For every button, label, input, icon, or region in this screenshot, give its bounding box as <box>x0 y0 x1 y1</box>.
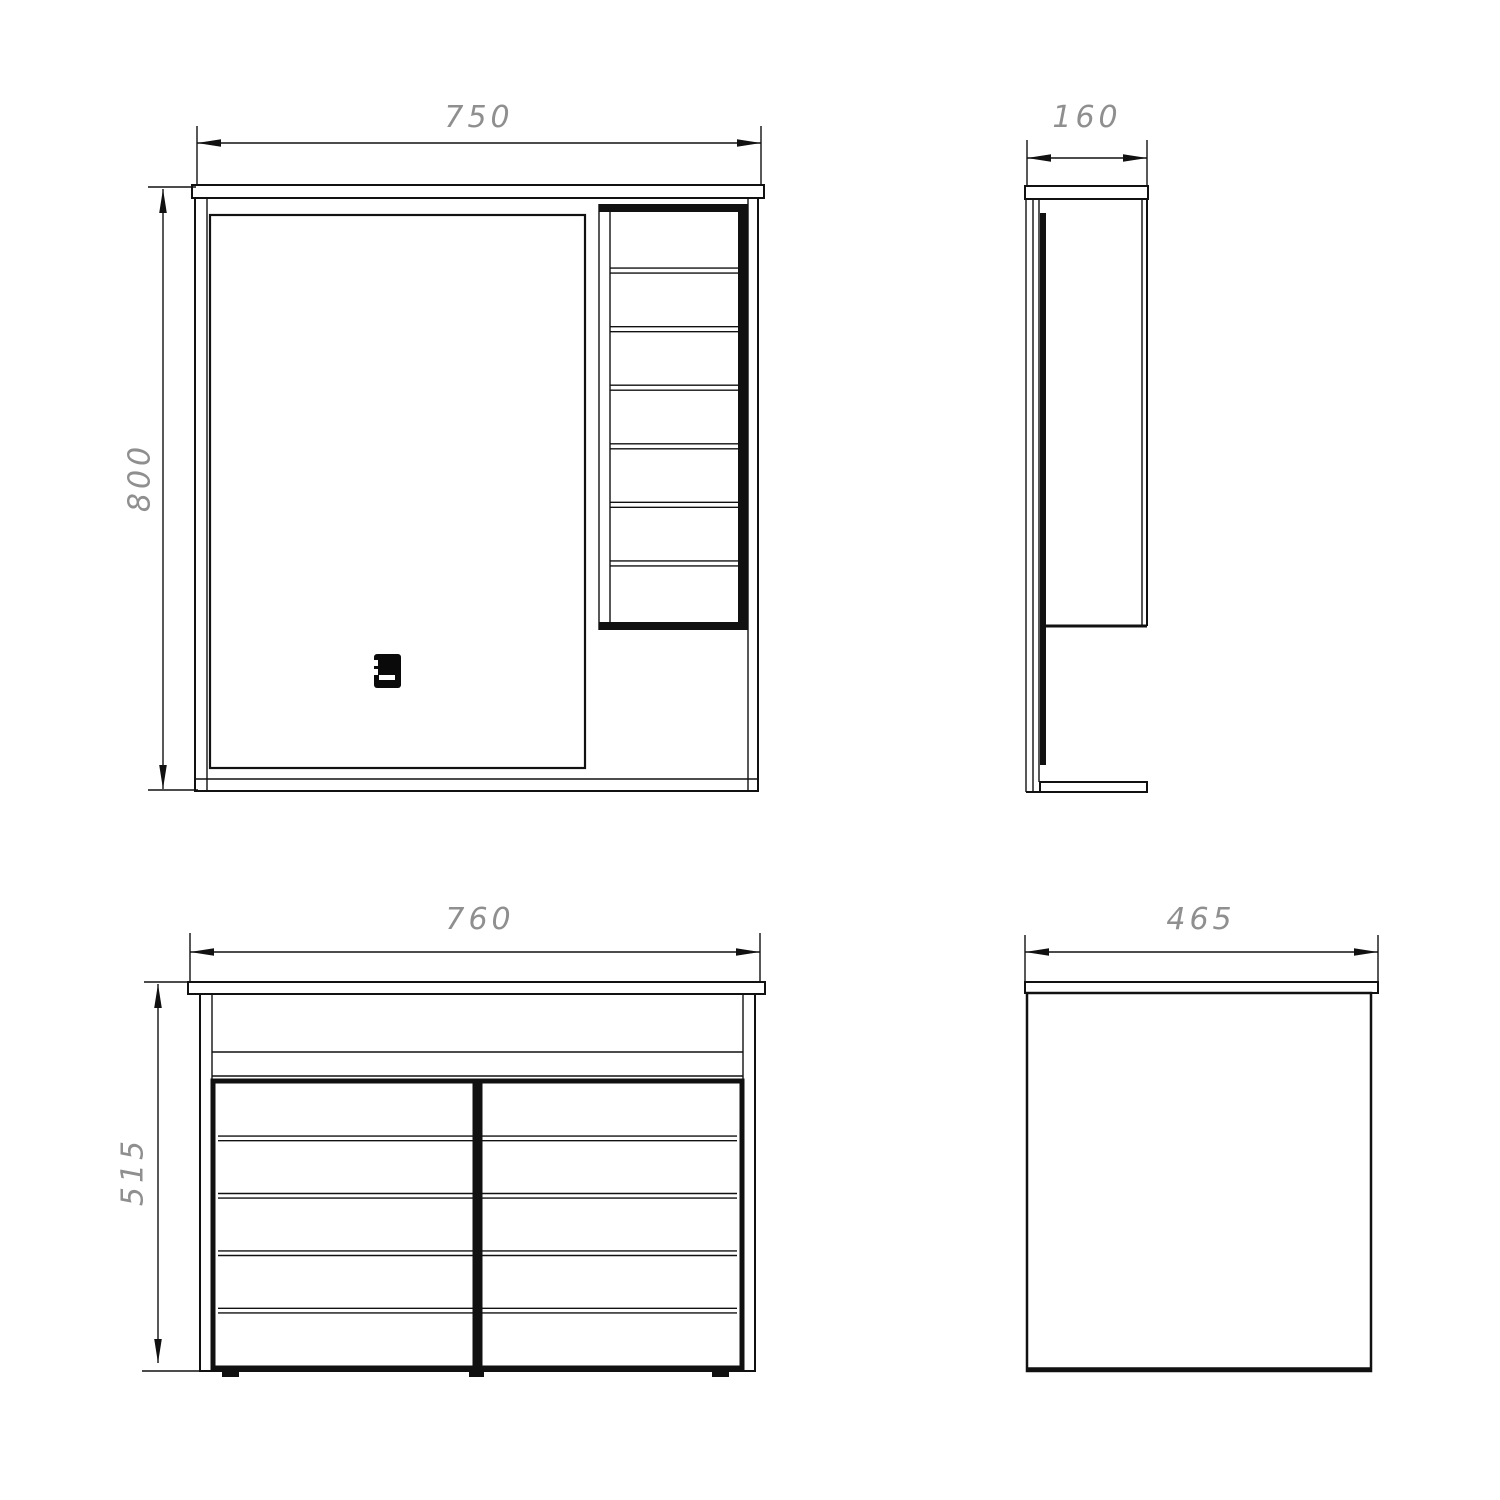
arrow-left <box>197 139 221 147</box>
dim-depth-465-lines <box>1025 935 1378 982</box>
dim-width-760-lines <box>190 933 760 982</box>
arrow-left <box>190 948 214 956</box>
arrow-right <box>736 948 760 956</box>
arrow-right <box>737 139 761 147</box>
top-board-side <box>1025 186 1148 199</box>
countertop-side <box>1025 982 1378 993</box>
dim-label-vanity-depth: 465 <box>1151 902 1251 937</box>
bottom-ledge <box>1040 782 1147 792</box>
drawer-column-dividers <box>473 1081 483 1368</box>
cabinet-body <box>195 198 758 791</box>
arrow-right <box>1354 948 1378 956</box>
dim-label-vanity-width: 760 <box>430 902 530 937</box>
vanity-body-side <box>1027 993 1371 1371</box>
arrow-up <box>159 189 167 213</box>
foot-center <box>469 1370 484 1377</box>
vanity-side-view <box>1025 935 1378 1371</box>
shelf-separators <box>610 268 738 566</box>
touch-switch-icon <box>372 654 401 688</box>
drawer-grid <box>213 1081 742 1368</box>
technical-drawing-canvas: 750 800 160 760 515 465 <box>0 0 1500 1500</box>
mirror-cabinet-side-view <box>1025 140 1148 792</box>
dim-depth-160-lines <box>1027 140 1147 186</box>
arrow-down <box>159 765 167 789</box>
dim-label-vanity-height: 515 <box>116 1122 151 1222</box>
shelf-column <box>599 204 748 630</box>
drawer-center-divider <box>473 1081 483 1368</box>
arrow-left <box>1027 154 1051 162</box>
dim-height-515-lines <box>142 982 208 1371</box>
shelf-right-rail-bar <box>738 204 748 630</box>
mirror-cabinet-front-view <box>148 126 764 791</box>
dim-label-mirror-depth: 160 <box>1037 100 1137 135</box>
arrow-up <box>154 984 162 1008</box>
foot-left <box>222 1370 239 1377</box>
dim-label-mirror-height: 800 <box>123 428 158 528</box>
mirror-profile-bar <box>1040 213 1046 765</box>
top-board <box>192 185 764 198</box>
vanity-front-view <box>142 933 765 1377</box>
shelf-top-bar <box>599 204 748 212</box>
shelf-bottom-bar <box>599 622 748 630</box>
drawing-linework <box>0 0 1500 1500</box>
dim-label-mirror-width: 750 <box>429 100 529 135</box>
arrow-left <box>1025 948 1049 956</box>
arrow-right <box>1123 154 1147 162</box>
foot-right <box>712 1370 729 1377</box>
countertop <box>188 982 765 994</box>
arrow-down <box>154 1339 162 1363</box>
